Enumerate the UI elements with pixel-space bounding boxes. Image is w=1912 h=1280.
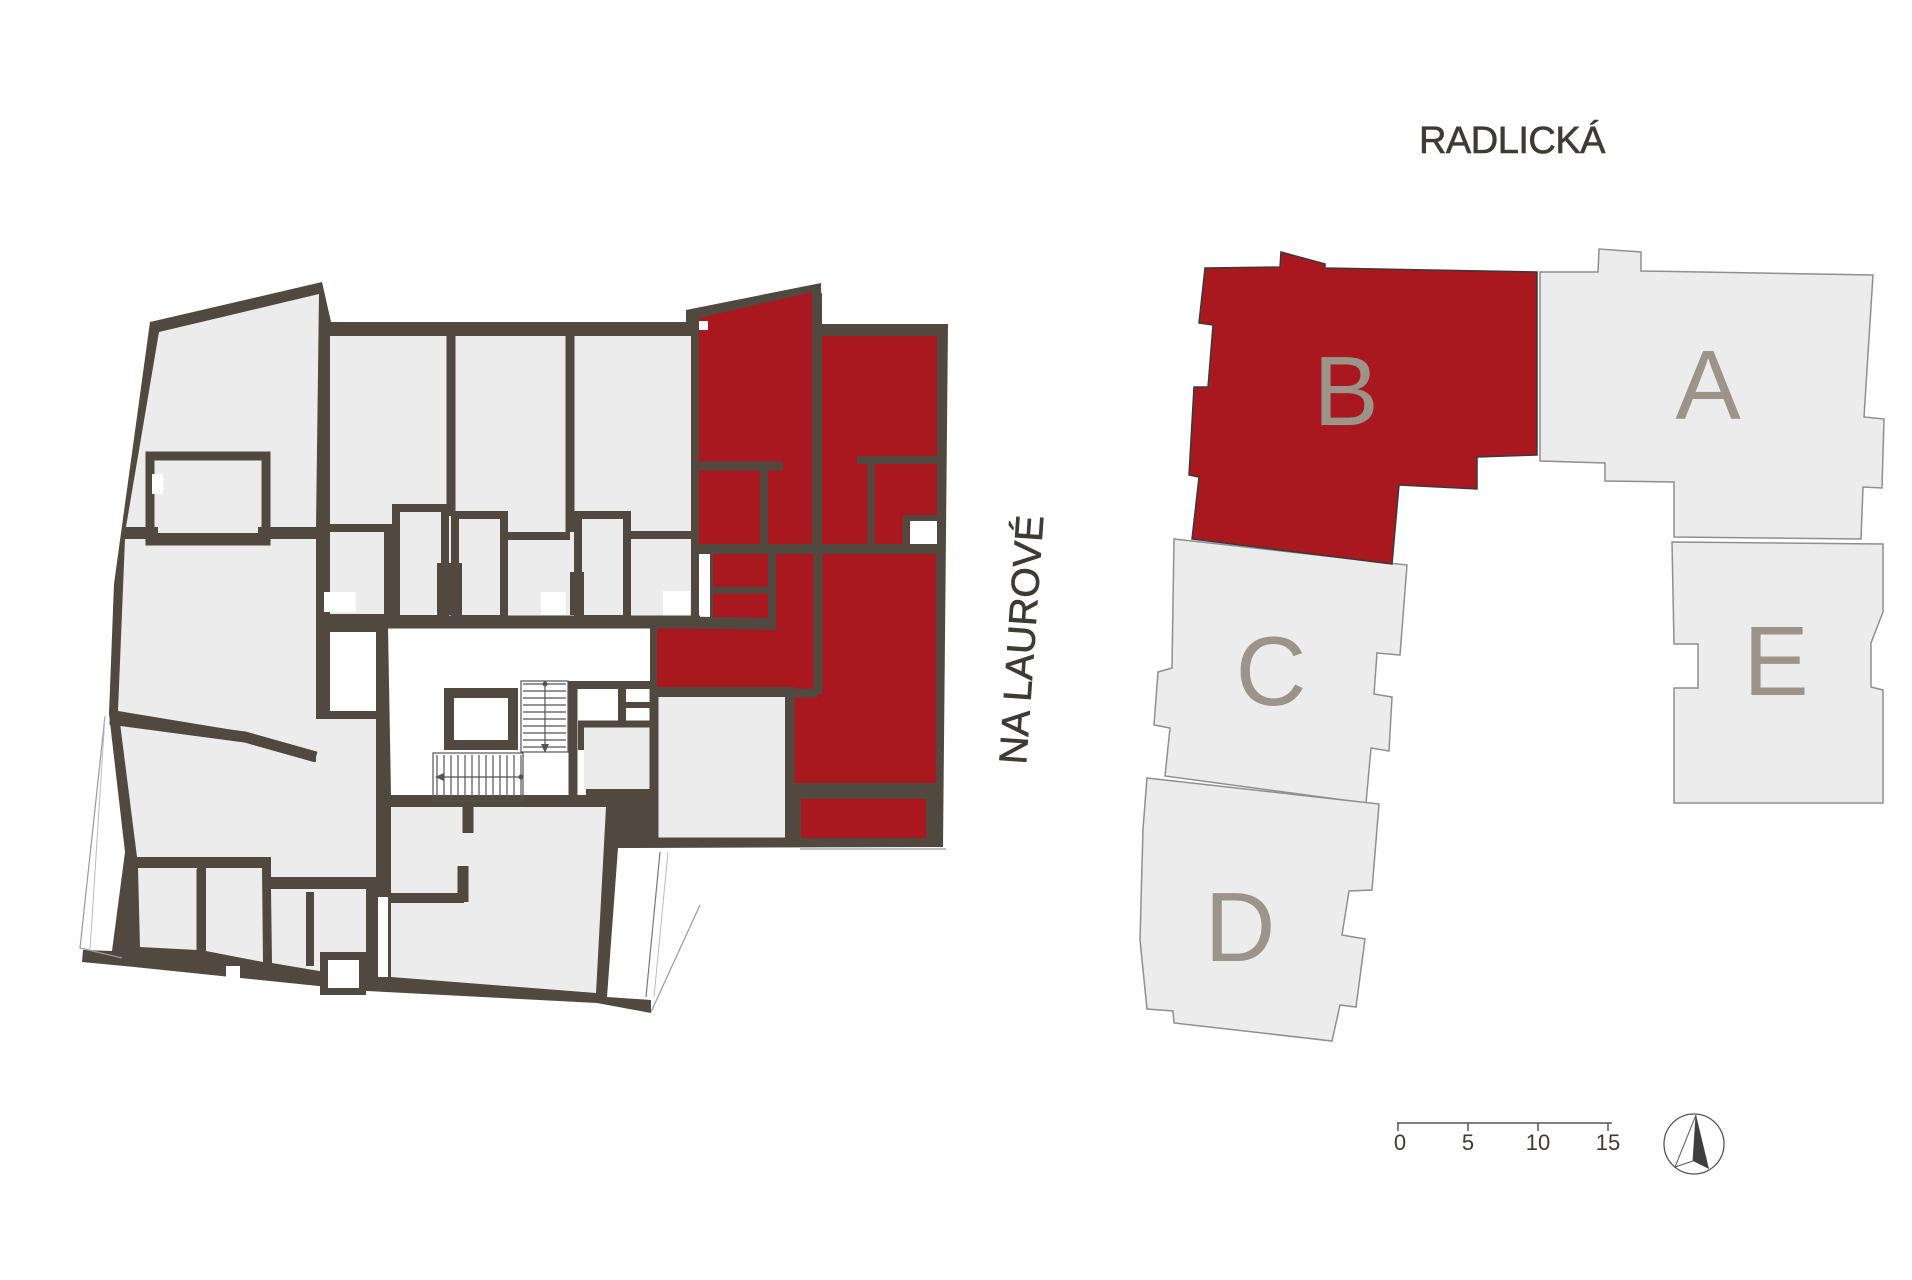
- svg-text:C: C: [1236, 616, 1307, 726]
- svg-text:B: B: [1313, 336, 1378, 446]
- svg-text:10: 10: [1526, 1130, 1550, 1155]
- svg-text:15: 15: [1596, 1130, 1620, 1155]
- svg-text:A: A: [1675, 330, 1741, 440]
- svg-text:RADLICKÁ: RADLICKÁ: [1419, 119, 1606, 162]
- svg-text:D: D: [1205, 872, 1276, 982]
- svg-text:E: E: [1743, 606, 1808, 716]
- svg-text:5: 5: [1462, 1130, 1474, 1155]
- svg-text:0: 0: [1394, 1130, 1406, 1155]
